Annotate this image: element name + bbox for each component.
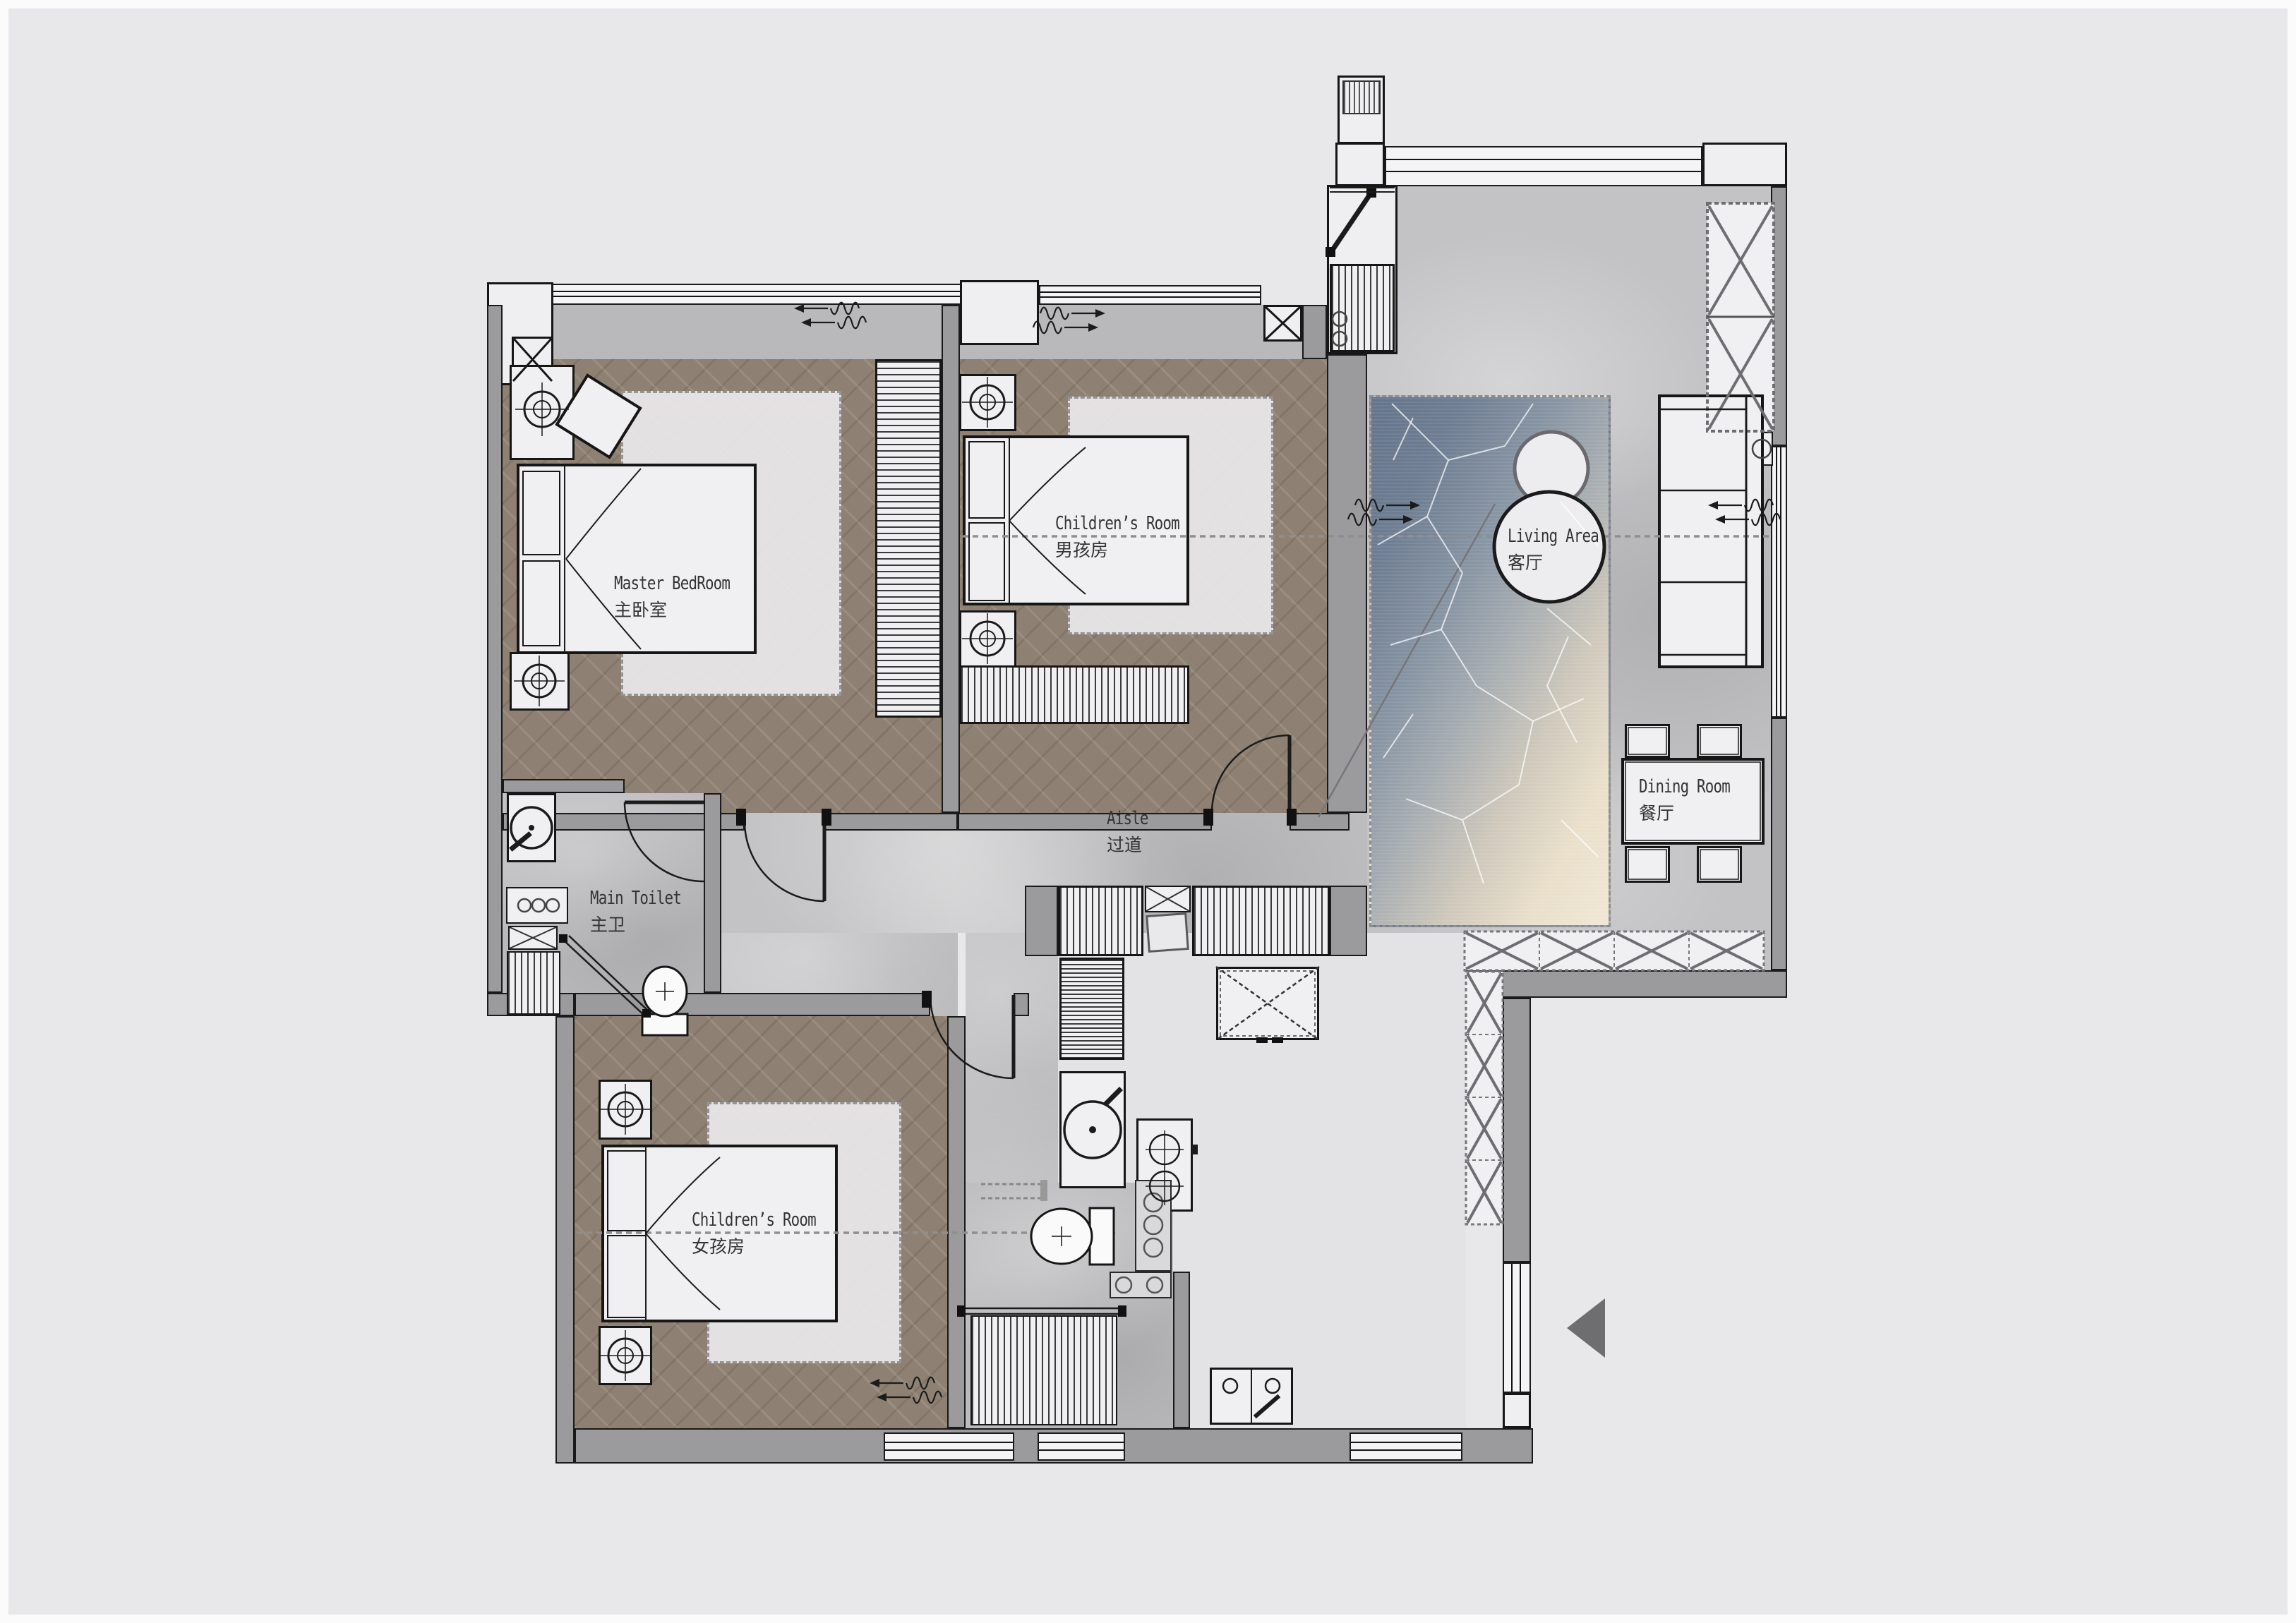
washing-machine [507, 793, 556, 862]
room-label-main-toilet: Main Toilet 主卫 [590, 888, 704, 936]
aisle-floor-south [966, 933, 1058, 1183]
master-nightstand-bottom [510, 652, 570, 711]
guest-vanity [1135, 1180, 1172, 1272]
toilet-shower [507, 951, 560, 1015]
window-girls-bottom [884, 1432, 1014, 1461]
room-label-aisle: Aisle 过道 [1107, 808, 1158, 857]
boys-wardrobe [959, 665, 1189, 724]
girls-nightstand-bottom [599, 1326, 652, 1385]
girls-pillow-1 [607, 1150, 647, 1231]
living-label-en: Living Area [1508, 526, 1599, 547]
room-label-living-area: Living Area 客厅 [1508, 526, 1621, 574]
entry-stub-hatch [1342, 80, 1381, 114]
wall-bath-kitchen [1173, 1272, 1190, 1428]
girls-label-en: Children’s Room [692, 1209, 816, 1231]
room-label-girls-room: Children’s Room 女孩房 [692, 1209, 847, 1258]
master-curtain-band [503, 305, 942, 359]
wall-girls-top-east [1014, 993, 1029, 1016]
master-label-en: Master BedRoom [614, 573, 730, 594]
sideboard-horizontal [1465, 931, 1764, 970]
wall-kitchen-top-east [1330, 886, 1367, 956]
wall-toilet-east [704, 793, 721, 993]
wall-kitchen-top-west [1025, 886, 1058, 956]
toilet-x-box [508, 926, 558, 950]
wall-girls-top [575, 993, 930, 1016]
fridge [1059, 958, 1124, 1060]
wall-master-boys [942, 305, 960, 813]
wall-boys-east [1327, 354, 1367, 813]
boys-pillow-1 [968, 441, 1005, 519]
sofa [1658, 394, 1764, 668]
wall-girls-east [947, 1016, 966, 1428]
entry-shoe-cabinet [1330, 264, 1395, 352]
kitchen-cabinet-west [1058, 886, 1143, 956]
wall-kitchen-east [1503, 998, 1531, 1262]
girls-nightstand-top [599, 1080, 652, 1140]
master-pillow-1 [522, 471, 560, 555]
dining-chair-3 [1625, 846, 1670, 883]
sideboard-vertical [1466, 972, 1503, 1224]
boys-label-en: Children’s Room [1055, 513, 1179, 534]
kitchen-counter-sink [1059, 1071, 1126, 1188]
block-entry-top-left [1335, 143, 1385, 186]
kitchen-island [1216, 967, 1319, 1040]
living-label-cn: 客厅 [1508, 549, 1621, 574]
dining-chair-1 [1625, 724, 1670, 758]
girls-label-cn: 女孩房 [692, 1233, 847, 1258]
wall-living-bottom [1466, 970, 1787, 998]
kitchen-double-sink [1210, 1368, 1293, 1425]
wall-left-outer [487, 305, 503, 993]
toilet-vanity [506, 887, 568, 924]
boys-pillow-2 [968, 522, 1005, 601]
wall-boys-bottom-west [958, 813, 1212, 831]
dining-label-cn: 餐厅 [1639, 800, 1753, 825]
entry-arrow-icon [1567, 1298, 1605, 1358]
window-right-sofa [1771, 446, 1787, 718]
girls-pillow-2 [607, 1235, 647, 1318]
guest-shower [970, 1315, 1117, 1425]
floor-plan-canvas: Master BedRoom 主卧室 Children’s Room 男孩房 C… [0, 0, 2296, 1623]
room-label-master-bedroom: Master BedRoom 主卧室 [614, 573, 759, 622]
kitchen-x-box [1145, 886, 1191, 912]
wall-boys-bottom-east [1290, 813, 1350, 831]
window-kitchen-bottom [1350, 1432, 1462, 1461]
kitchen-cabinet-east [1192, 886, 1330, 956]
master-wardrobe [875, 359, 942, 718]
wall-boys-top-east [1302, 305, 1327, 359]
block-boys-top [960, 280, 1039, 345]
window-kitchen-east [1503, 1262, 1531, 1393]
boys-nightstand-bottom [959, 610, 1016, 668]
wall-right-lower [1771, 718, 1787, 970]
master-label-cn: 主卧室 [614, 596, 759, 622]
window-boys-top [1039, 285, 1261, 305]
room-label-boys-room: Children’s Room 男孩房 [1055, 513, 1210, 562]
toilet-label-cn: 主卫 [590, 911, 704, 936]
corner-block-top-right [1702, 143, 1787, 186]
guest-vanity-low [1110, 1272, 1172, 1298]
boys-label-cn: 男孩房 [1055, 536, 1210, 562]
microwave [1146, 912, 1189, 953]
wall-master-bottom-east [824, 813, 958, 831]
room-label-dining-room: Dining Room 餐厅 [1639, 776, 1753, 825]
block-kitchen-east-bottom [1503, 1393, 1531, 1428]
master-pillow-2 [522, 560, 560, 646]
living-area-rug [1369, 395, 1611, 927]
dining-chair-2 [1697, 724, 1742, 758]
toilet-label-en: Main Toilet [590, 888, 681, 909]
column-boys-top [1263, 305, 1302, 342]
dining-chair-4 [1697, 846, 1742, 883]
aisle-label-cn: 过道 [1107, 831, 1158, 857]
window-bath-bottom [1038, 1432, 1125, 1461]
wall-girls-left [555, 1016, 575, 1464]
wall-toilet-top [503, 779, 625, 793]
aisle-label-en: Aisle [1107, 808, 1148, 829]
dining-label-en: Dining Room [1639, 776, 1730, 797]
boys-nightstand-top [959, 374, 1016, 431]
window-entry-top [1385, 146, 1702, 186]
